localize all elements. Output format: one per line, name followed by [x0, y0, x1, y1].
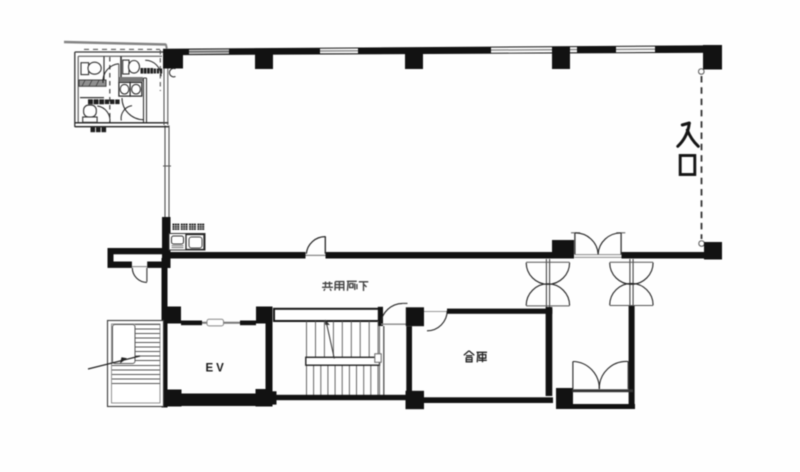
svg-text:EV: EV [206, 363, 227, 375]
